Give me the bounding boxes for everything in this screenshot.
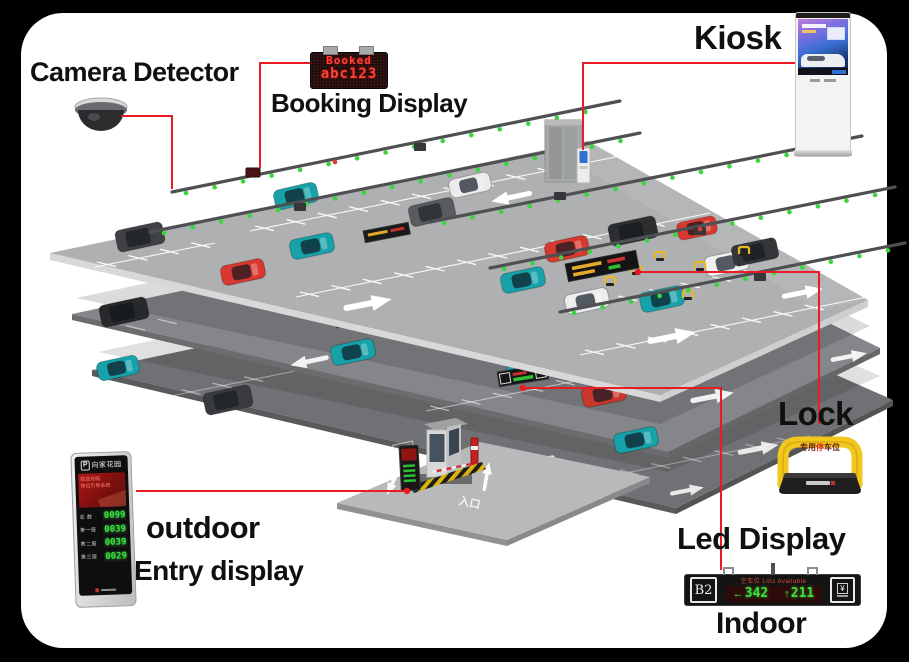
kiosk-device bbox=[795, 12, 851, 157]
kiosk-screen bbox=[798, 19, 848, 75]
kiosk-header-strip bbox=[796, 13, 850, 18]
kiosk-pillar bbox=[577, 148, 590, 183]
outdoor-display-panel: P 向家花园 欢迎光临 车位引导系统 总 数 0099 第一层 0039 第二层… bbox=[74, 455, 132, 596]
lock-bar-text: 专用停车位 bbox=[800, 442, 840, 452]
up-arrow-icon: ↑ bbox=[784, 586, 790, 602]
indoor-display-center: 空车位 Lots Available ←342 ↑211 bbox=[722, 579, 825, 602]
zone-badge: B2 bbox=[690, 577, 717, 603]
kiosk-label: Kiosk bbox=[694, 21, 781, 56]
kiosk-logo bbox=[810, 79, 836, 82]
kiosk-ad-text-bar bbox=[802, 30, 816, 33]
lots-available-header: 空车位 Lots Available bbox=[741, 579, 807, 586]
indoor-led-display: B2 空车位 Lots Available ←342 ↑211 ¥ bbox=[684, 574, 861, 606]
level-row: 总 数 0099 bbox=[79, 510, 126, 522]
entry-mini-display bbox=[399, 445, 420, 491]
camera-detector-label: Camera Detector bbox=[30, 58, 239, 86]
level-row: 第三层 0029 bbox=[81, 551, 128, 563]
display-mount-tab bbox=[807, 567, 818, 575]
booking-spot-sensor bbox=[246, 168, 260, 177]
level-row: 第一层 0039 bbox=[80, 524, 127, 536]
lock-label: Lock bbox=[778, 397, 853, 432]
outdoor-label: outdoor bbox=[146, 512, 260, 545]
entry-display-label: Entry display bbox=[134, 556, 303, 585]
left-counter: ←342 bbox=[733, 586, 768, 602]
level-counters: 总 数 0099 第一层 0039 第二层 0039 第三层 0029 bbox=[79, 510, 129, 586]
led-display-label: Led Display bbox=[677, 523, 846, 556]
kiosk-ad-text-bar bbox=[802, 24, 826, 28]
outdoor-title: 向家花园 bbox=[91, 459, 121, 470]
level-row: 第二层 0039 bbox=[80, 537, 127, 549]
booking-mount-tab bbox=[359, 46, 374, 55]
outdoor-brand-logo bbox=[82, 587, 129, 593]
indoor-label: Indoor bbox=[716, 608, 806, 640]
outdoor-red-screen: 欢迎光临 车位引导系统 bbox=[78, 472, 126, 508]
kiosk-ad-panel bbox=[827, 27, 845, 40]
display-mount-tab bbox=[723, 567, 734, 575]
kiosk-screen-footer bbox=[798, 68, 848, 75]
lots-counters: ←342 ↑211 bbox=[726, 586, 821, 602]
outdoor-entry-display: P 向家花园 欢迎光临 车位引导系统 总 数 0099 第一层 0039 第二层… bbox=[70, 451, 136, 608]
camera-connector bbox=[121, 116, 172, 189]
up-counter: ↑211 bbox=[784, 586, 814, 602]
booking-mount-tab bbox=[323, 46, 338, 55]
booking-display-device: Booked abc123 bbox=[310, 52, 388, 89]
parking-system-diagram: 入口 bbox=[0, 0, 909, 662]
outdoor-display-header: P 向家花园 bbox=[78, 459, 125, 471]
parking-badge: P bbox=[81, 460, 90, 470]
payment-icon: ¥ bbox=[830, 577, 855, 603]
booking-line2: abc123 bbox=[311, 67, 387, 82]
booking-display-label: Booking Display bbox=[271, 90, 467, 117]
display-mount-stem bbox=[771, 563, 775, 575]
dome-camera bbox=[75, 98, 127, 131]
elevator bbox=[545, 120, 582, 182]
left-arrow-icon: ← bbox=[733, 586, 744, 602]
kiosk-base bbox=[794, 150, 852, 156]
kiosk-ad-car bbox=[801, 54, 845, 67]
